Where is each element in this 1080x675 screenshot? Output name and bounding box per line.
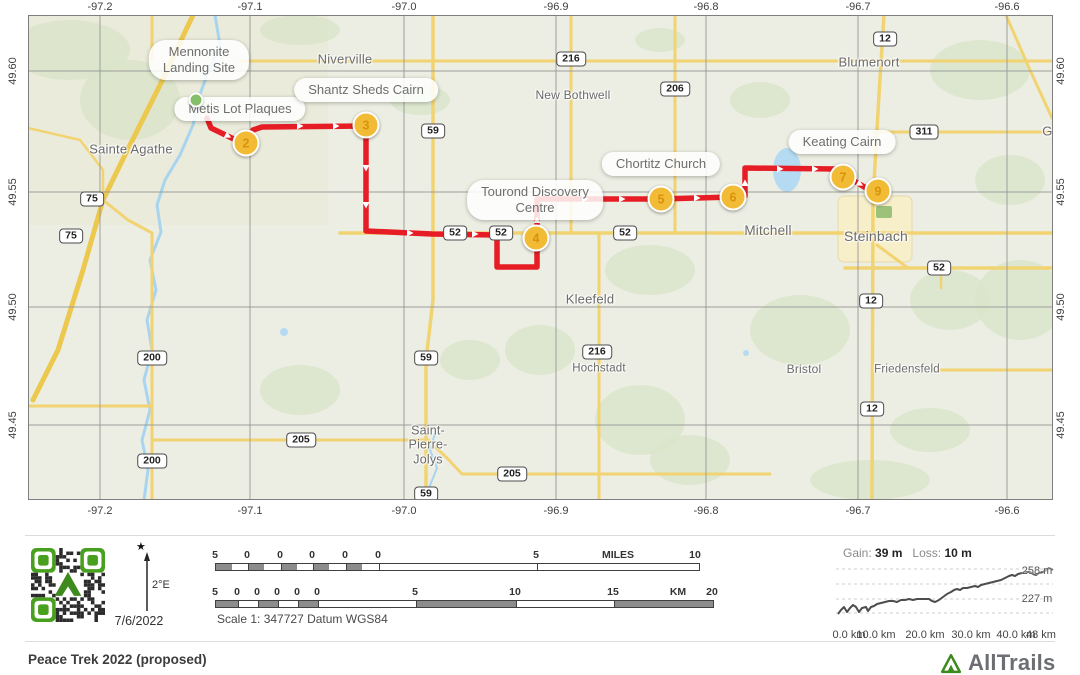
elevation-y-label: 227 m (1022, 593, 1053, 605)
divider (25, 535, 1055, 536)
miles-scale-bar-label: 5 (212, 549, 218, 561)
alltrails-wordmark: AllTrails (968, 650, 1055, 675)
km-scale-bar-label: 0 (254, 586, 260, 598)
miles-scale-bar-label: MILES (602, 549, 634, 561)
miles-scale-bar-label: 0 (375, 549, 381, 561)
km-scale-bar-cell (416, 601, 516, 607)
km-scale-bar-cell (298, 601, 318, 607)
km-scale-bar-label: 0 (314, 586, 320, 598)
km-scale-bar-tick (318, 601, 319, 607)
km-scale-bar-label: 5 (212, 586, 218, 598)
alltrails-mountain-icon (938, 650, 964, 675)
alltrails-logo: AllTrails (938, 650, 1068, 675)
km-scale-bar-label: 20 (706, 586, 718, 598)
miles-scale-bar-label: 10 (689, 549, 701, 561)
miles-scale-bar-label: 0 (342, 549, 348, 561)
miles-scale-bar-cell (313, 564, 329, 570)
km-scale-bar-tick (614, 601, 615, 607)
km-scale-bar-cell (258, 601, 278, 607)
km-scale-bar-label: 0 (234, 586, 240, 598)
miles-scale-bar-label: 5 (533, 549, 539, 561)
declination-label: 2°E (152, 579, 170, 591)
map-frame-border (28, 15, 1053, 500)
km-scale-bar-tick (516, 601, 517, 607)
miles-scale-bar-tick (313, 564, 314, 570)
qr-code (30, 548, 106, 622)
miles-scale-bar-tick (537, 564, 538, 570)
km-scale-bar (215, 600, 714, 608)
km-scale-bar-label: 5 (412, 586, 418, 598)
elevation-x-label: 48 km (1026, 629, 1056, 641)
km-scale-bar-tick (238, 601, 239, 607)
km-scale-bar-label: 15 (607, 586, 619, 598)
km-scale-bar-label: 0 (294, 586, 300, 598)
elevation-x-label: 30.0 km (951, 629, 990, 641)
qr-alltrails-logo (55, 572, 82, 596)
page-title: Peace Trek 2022 (proposed) (28, 652, 207, 667)
km-scale-bar-label: 0 (274, 586, 280, 598)
elevation-y-label: 258 m (1022, 565, 1053, 577)
miles-scale-bar (215, 563, 700, 571)
divider (25, 641, 1055, 642)
km-scale-bar-tick (416, 601, 417, 607)
km-scale-bar-cell (216, 601, 238, 607)
km-scale-bar-tick (278, 601, 279, 607)
miles-scale-bar-tick (379, 564, 380, 570)
miles-scale-bar-label: 0 (277, 549, 283, 561)
alltrails-print-map-page: NivervilleNew BothwellBlumenortSainte Ag… (0, 0, 1080, 675)
scale-datum-text: Scale 1: 347727 Datum WGS84 (217, 612, 388, 626)
elevation-x-label: 20.0 km (905, 629, 944, 641)
km-scale-bar-tick (258, 601, 259, 607)
miles-scale-bar-label: 0 (309, 549, 315, 561)
miles-scale-bar-cell (346, 564, 362, 570)
km-scale-bar-label: 10 (509, 586, 521, 598)
elevation-x-label: 10.0 km (856, 629, 895, 641)
miles-scale-bar-cell (216, 564, 232, 570)
map-date: 7/6/2022 (115, 614, 164, 628)
km-scale-bar-label: KM (670, 586, 686, 598)
km-scale-bar-cell (614, 601, 713, 607)
miles-scale-bar-label: 0 (244, 549, 250, 561)
miles-scale-bar-cell (248, 564, 264, 570)
miles-scale-bar-tick (281, 564, 282, 570)
miles-scale-bar-tick (248, 564, 249, 570)
miles-scale-bar-cell (281, 564, 297, 570)
km-scale-bar-tick (298, 601, 299, 607)
miles-scale-bar-tick (346, 564, 347, 570)
